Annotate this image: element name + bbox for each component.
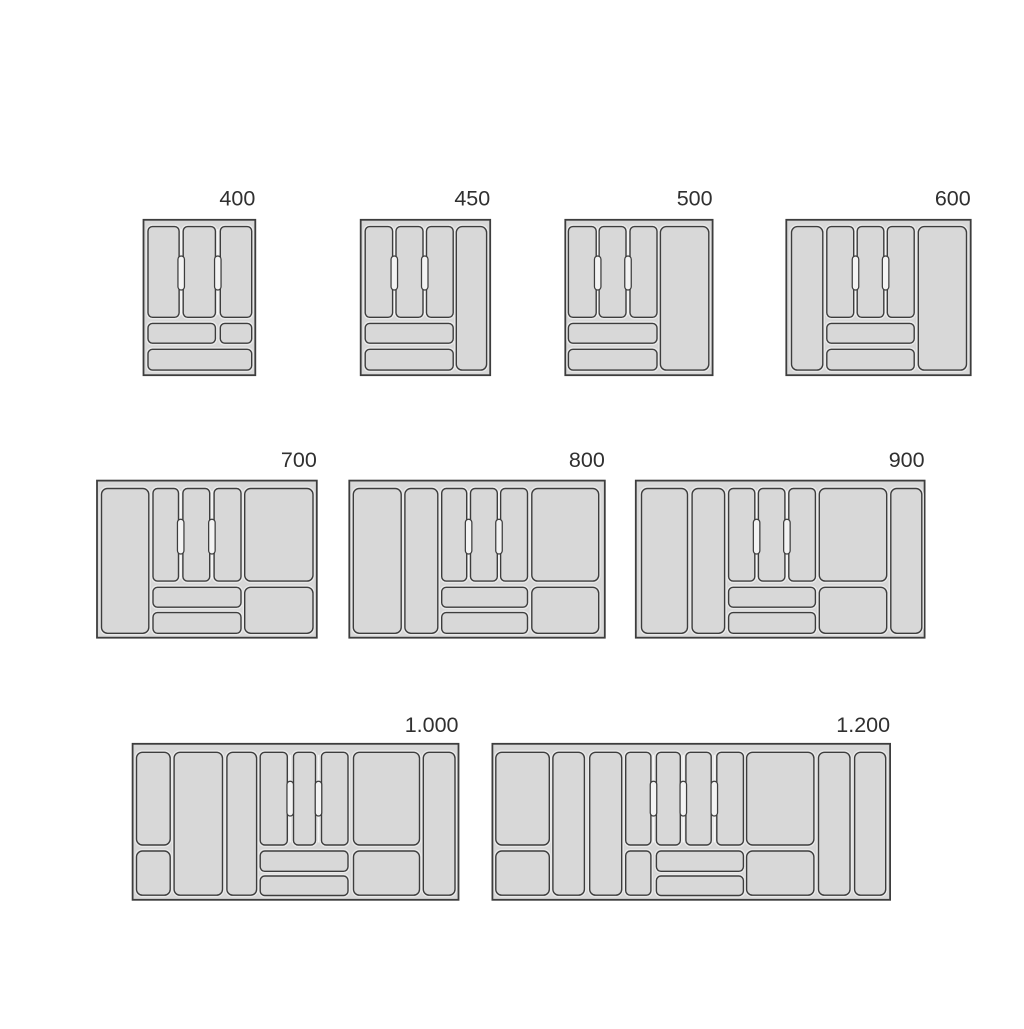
svg-text:700: 700	[281, 448, 317, 472]
svg-text:600: 600	[935, 186, 971, 210]
svg-text:800: 800	[569, 448, 605, 472]
svg-text:450: 450	[454, 186, 490, 210]
svg-text:1.200: 1.200	[836, 713, 890, 737]
svg-text:500: 500	[677, 186, 713, 210]
svg-text:400: 400	[219, 186, 255, 210]
svg-text:900: 900	[889, 448, 925, 472]
svg-text:1.000: 1.000	[405, 713, 459, 737]
